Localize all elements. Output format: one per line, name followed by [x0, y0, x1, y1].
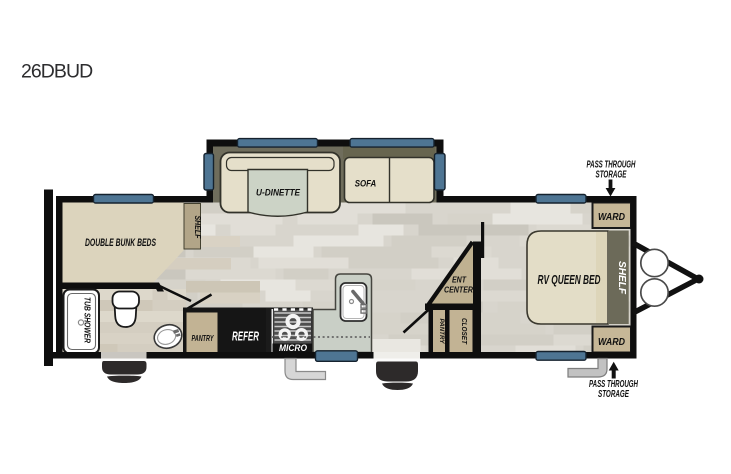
svg-text:PANTRY: PANTRY [192, 333, 215, 343]
svg-text:U-DINETTE: U-DINETTE [256, 188, 301, 199]
svg-text:STORAGE: STORAGE [598, 389, 629, 400]
svg-text:RV QUEEN BED: RV QUEEN BED [538, 272, 601, 287]
svg-text:STORAGE: STORAGE [596, 169, 627, 180]
svg-text:ENT: ENT [452, 276, 467, 285]
svg-text:WARD: WARD [598, 336, 625, 348]
svg-text:CLOSET: CLOSET [460, 318, 469, 345]
svg-text:26DBUD: 26DBUD [21, 61, 94, 83]
svg-text:SOFA: SOFA [355, 178, 377, 189]
svg-text:WARD: WARD [598, 211, 625, 223]
svg-text:DOUBLE BUNK BEDS: DOUBLE BUNK BEDS [85, 237, 156, 249]
svg-text:REFER: REFER [232, 330, 259, 344]
svg-text:PANTRY: PANTRY [438, 319, 445, 345]
svg-text:CENTER: CENTER [444, 286, 473, 295]
svg-text:SHELF: SHELF [616, 261, 627, 295]
svg-text:TUB SHOWER: TUB SHOWER [83, 297, 93, 344]
svg-text:SHELF: SHELF [193, 216, 202, 240]
